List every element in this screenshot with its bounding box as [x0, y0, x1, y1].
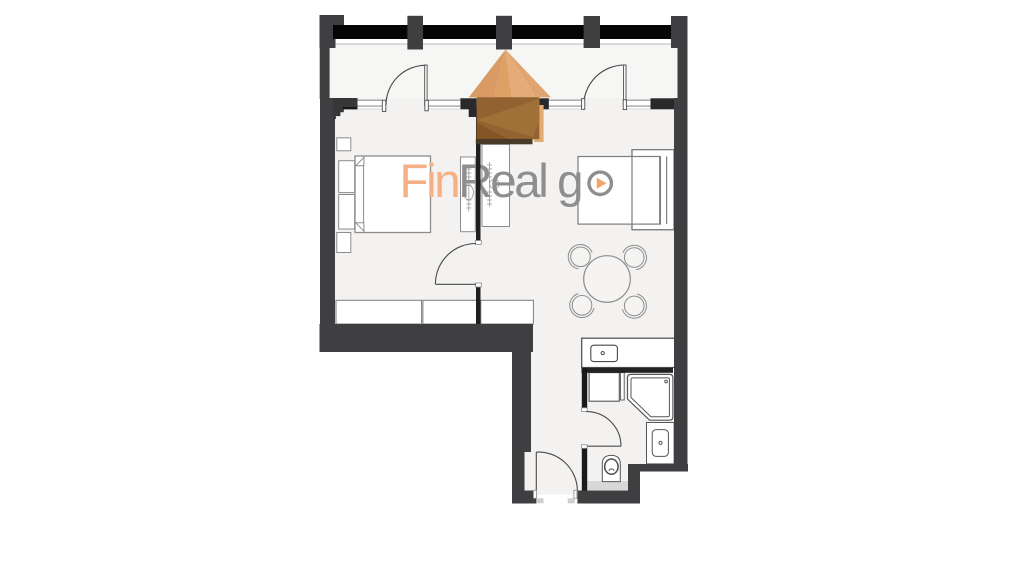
- svg-text:FinReal g: FinReal g: [400, 155, 582, 208]
